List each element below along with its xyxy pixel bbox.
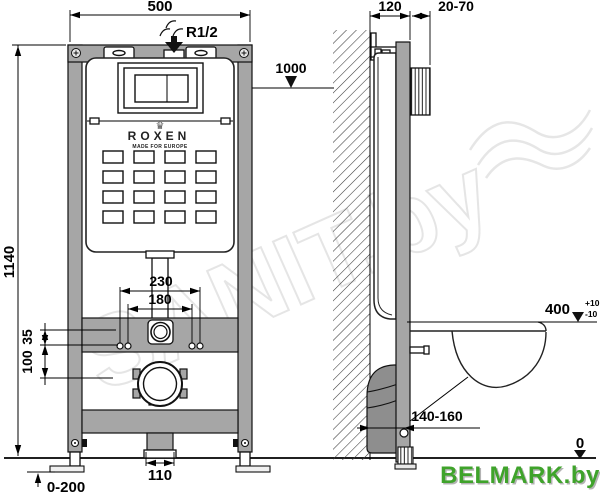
dim-plate-20-70: 20-70	[412, 0, 474, 65]
dim-label: 180	[148, 291, 172, 307]
drain-bend-pipe	[367, 365, 398, 453]
dim-label: 140-160	[411, 408, 463, 424]
toilet-bowl-profile	[410, 322, 546, 387]
cistern-side-profile	[374, 53, 396, 319]
watermark-swirl-icon	[470, 110, 592, 178]
brand-tagline: MADE FOR EUROPE	[132, 144, 187, 150]
level-label: 0	[576, 435, 584, 452]
leg-clamp-icon	[82, 439, 87, 447]
dim-label: 120	[378, 0, 402, 14]
level-marker-icon	[285, 76, 297, 88]
dim-label: 100	[19, 350, 35, 374]
level-label: 400	[545, 301, 570, 318]
wall-hatch	[333, 30, 370, 460]
flush-plate-housing	[411, 68, 430, 115]
leg-clamp-icon	[233, 439, 238, 447]
water-supply-icon	[160, 21, 184, 59]
frame-right-rail	[238, 45, 252, 452]
tolerance-plus: +10	[585, 298, 600, 308]
water-inlet-port	[148, 320, 173, 344]
outlet-foot	[144, 450, 176, 458]
dim-label: 230	[149, 273, 173, 289]
dim-label: 110	[148, 467, 172, 484]
dim-label: 20-70	[438, 0, 474, 14]
level-marker-icon	[572, 312, 584, 322]
dim-height-1140: 1140	[1, 45, 66, 456]
level-seat-400: 400 +10 -10	[407, 298, 600, 322]
dim-label: 500	[147, 0, 172, 15]
vendor-logo-text: BELMARK.by	[440, 462, 600, 489]
dim-label: 0-200	[47, 479, 85, 496]
dim-label: 35	[19, 329, 35, 345]
frame-post-profile	[396, 42, 410, 462]
cistern: ♛ ROXEN MADE FOR EUROPE	[86, 58, 234, 252]
tolerance-minus: -10	[585, 309, 598, 319]
technical-drawing: SANIT.by	[0, 0, 600, 497]
outlet-center-mark	[400, 429, 408, 437]
inlet-label: R1/2	[186, 24, 218, 41]
brand-name: ROXEN	[128, 129, 191, 143]
frame-left-rail	[68, 45, 82, 452]
level-label: 1000	[275, 60, 306, 76]
level-1000: 1000	[252, 60, 334, 88]
outlet-column	[147, 433, 173, 450]
post-foot	[395, 447, 416, 469]
bottom-crossbar	[82, 410, 238, 433]
dim-feet-0-200: 0-200	[27, 472, 85, 496]
dim-label: 1140	[1, 246, 18, 279]
level-floor-0: 0	[574, 435, 586, 459]
vendor-logo: BELMARK.by BELMARK.by	[440, 462, 600, 491]
fixing-rod	[410, 346, 429, 354]
